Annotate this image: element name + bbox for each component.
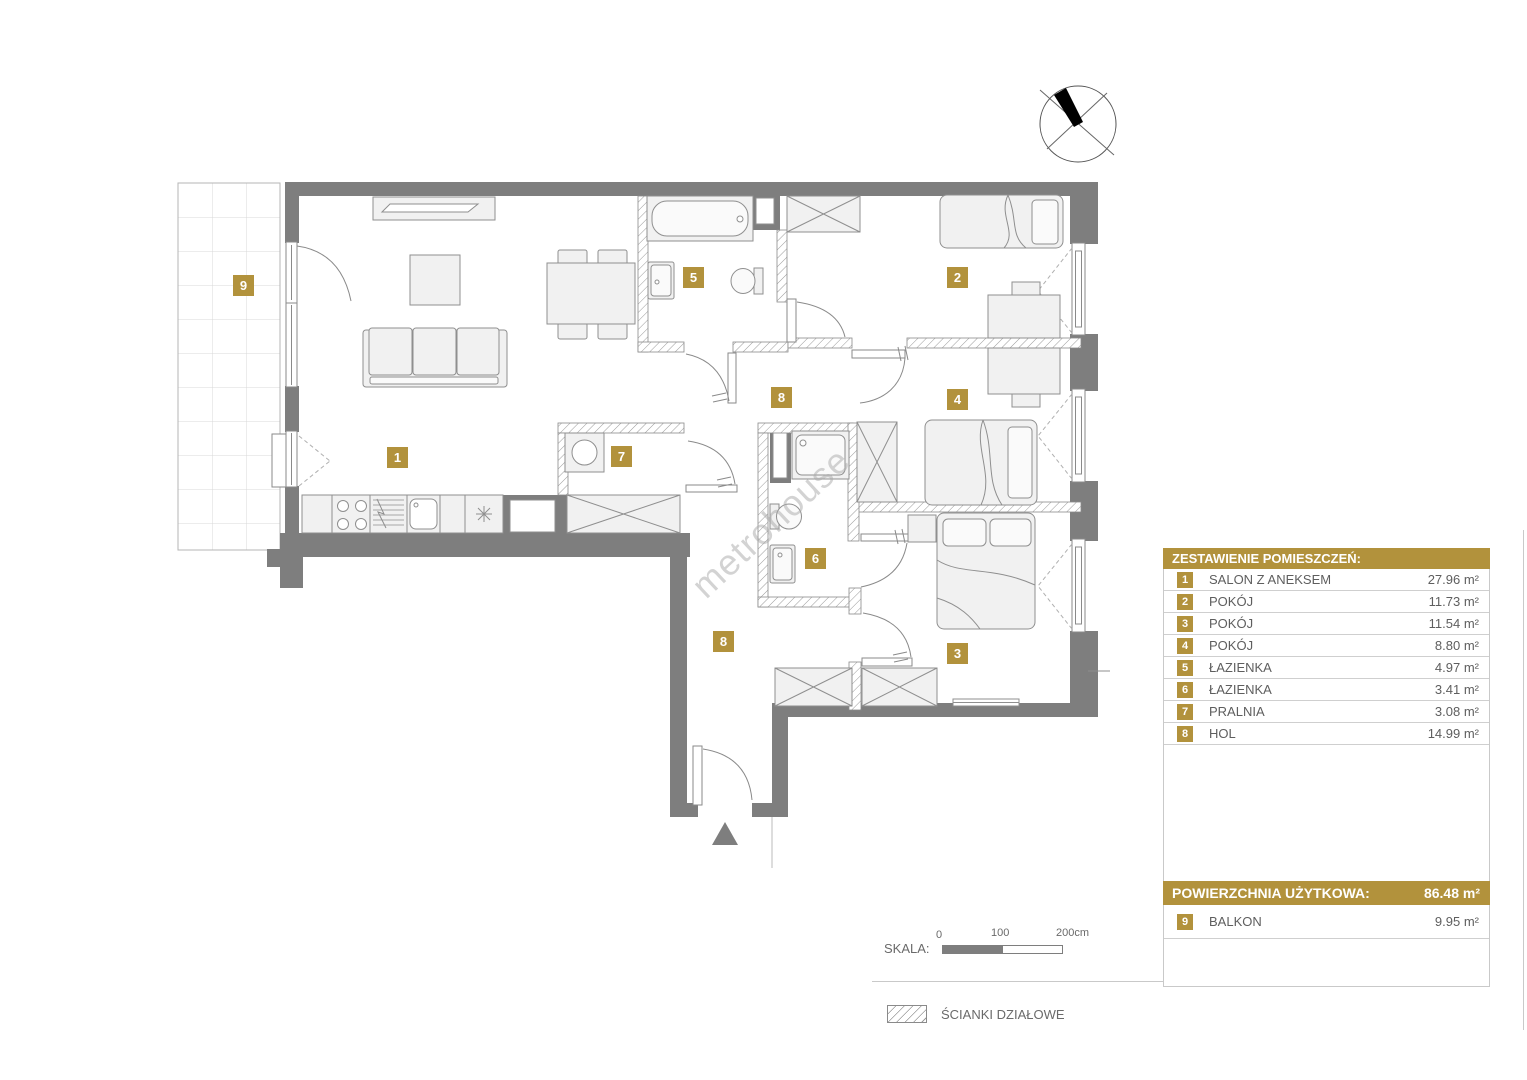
- room-badge-6: 6: [805, 548, 826, 569]
- washing-machine: [565, 433, 604, 472]
- row-badge: 9: [1177, 914, 1193, 930]
- room-badge-1: 1: [387, 447, 408, 468]
- sheet-border-line: [1523, 530, 1524, 1030]
- row-badge: 7: [1177, 704, 1193, 720]
- legend-row-2: 2POKÓJ11.73 m²: [1164, 591, 1489, 613]
- row-name: POKÓJ: [1209, 594, 1253, 609]
- desk-room2: [988, 282, 1060, 338]
- row-name: POKÓJ: [1209, 616, 1253, 631]
- nightstand-room3: [908, 515, 936, 542]
- room3-door: [862, 613, 912, 666]
- radiator-room3: [953, 699, 1019, 706]
- room-badge-3: 3: [947, 643, 968, 664]
- scale-bar-dark: [942, 945, 1002, 954]
- separator-line: [872, 981, 1163, 982]
- toilet-bath5: [731, 268, 763, 294]
- scale-bar-light: [1002, 945, 1063, 954]
- room-badge-8: 8: [713, 631, 734, 652]
- compass-icon: [1040, 86, 1116, 162]
- row-badge: 1: [1177, 572, 1193, 588]
- row-area: 4.97 m²: [1435, 660, 1479, 675]
- row-name: HOL: [1209, 726, 1236, 741]
- tv-cabinet: [373, 197, 495, 220]
- legend-header: ZESTAWIENIE POMIESZCZEŃ:: [1163, 548, 1490, 569]
- room-badge-5: 5: [683, 267, 704, 288]
- row-area: 3.08 m²: [1435, 704, 1479, 719]
- balcony-door: [286, 242, 351, 303]
- bed-room3-double: [937, 513, 1035, 629]
- bed-room4: [925, 420, 1037, 505]
- legend-row-8: 8HOL14.99 m²: [1164, 723, 1489, 745]
- row-name: ŁAZIENKA: [1209, 660, 1272, 675]
- row-area: 27.96 m²: [1428, 572, 1479, 587]
- row-area: 9.95 m²: [1435, 914, 1479, 929]
- balcony: [178, 183, 280, 550]
- legend-row-6: 6ŁAZIENKA3.41 m²: [1164, 679, 1489, 701]
- row-area: 8.80 m²: [1435, 638, 1479, 653]
- row-name: SALON Z ANEKSEM: [1209, 572, 1331, 587]
- entrance-door: [693, 746, 752, 805]
- row-area: 11.73 m²: [1429, 594, 1479, 609]
- total-value: 86.48 m²: [1424, 885, 1480, 901]
- legend-row-5: 5ŁAZIENKA4.97 m²: [1164, 657, 1489, 679]
- row-badge: 3: [1177, 616, 1193, 632]
- row-name: PRALNIA: [1209, 704, 1265, 719]
- room-badge-4: 4: [947, 389, 968, 410]
- room-badge-9: 9: [233, 275, 254, 296]
- legend-rows: 1SALON Z ANEKSEM27.96 m²2POKÓJ11.73 m²3P…: [1164, 569, 1489, 745]
- legend-row-1: 1SALON Z ANEKSEM27.96 m²: [1164, 569, 1489, 591]
- partition-legend-label: ŚCIANKI DZIAŁOWE: [941, 1007, 1065, 1022]
- legend-balcony-row: 9 BALKON 9.95 m²: [1164, 905, 1489, 939]
- scale-tick-0: 0: [936, 929, 942, 941]
- room-badge-2: 2: [947, 267, 968, 288]
- row-name: BALKON: [1209, 914, 1262, 929]
- row-area: 11.54 m²: [1429, 616, 1479, 631]
- sink-bath6: [770, 545, 795, 583]
- legend-row-7: 7PRALNIA3.08 m²: [1164, 701, 1489, 723]
- sink-bath5: [648, 262, 674, 299]
- room-badge-7: 7: [611, 446, 632, 467]
- entrance-marker: [712, 822, 738, 845]
- row-name: ŁAZIENKA: [1209, 682, 1272, 697]
- scale-tick-200: 200cm: [1056, 927, 1089, 939]
- hall-corridor-door: [787, 299, 845, 342]
- legend-row-4: 4POKÓJ8.80 m²: [1164, 635, 1489, 657]
- room4-door: [852, 346, 908, 403]
- row-area: 3.41 m²: [1435, 682, 1479, 697]
- row-badge: 8: [1177, 726, 1193, 742]
- bathtub: [647, 196, 753, 241]
- wall-niches: [510, 198, 787, 532]
- window-left: [272, 303, 330, 487]
- row-area: 14.99 m²: [1428, 726, 1479, 741]
- desk-room4: [988, 348, 1060, 407]
- scale-tick-100: 100: [991, 927, 1009, 939]
- coffee-table: [410, 255, 460, 305]
- scale-label: SKALA:: [884, 941, 930, 956]
- dining-set: [547, 250, 635, 339]
- row-badge: 5: [1177, 660, 1193, 676]
- sofa: [363, 328, 507, 387]
- laundry-door: [686, 441, 737, 492]
- room-legend-table: ZESTAWIENIE POMIESZCZEŃ: 1SALON Z ANEKSE…: [1163, 548, 1490, 987]
- bed-room2: [940, 195, 1063, 248]
- row-name: POKÓJ: [1209, 638, 1253, 653]
- total-label: POWIERZCHNIA UŻYTKOWA:: [1163, 885, 1370, 901]
- row-badge: 2: [1177, 594, 1193, 610]
- row-badge: 6: [1177, 682, 1193, 698]
- floorplan-sheet: metrohouse 1234567889 ZESTAWIENIE POMIES…: [0, 0, 1527, 1080]
- room-badge-8: 8: [771, 387, 792, 408]
- bathroom6-door: [861, 529, 909, 587]
- kitchen-counter: [302, 495, 503, 533]
- legend-total-bar: POWIERZCHNIA UŻYTKOWA: 86.48 m²: [1163, 881, 1490, 905]
- bathroom5-door: [686, 353, 736, 403]
- row-badge: 4: [1177, 638, 1193, 654]
- partition-hatch-swatch: [887, 1005, 927, 1023]
- legend-row-3: 3POKÓJ11.54 m²: [1164, 613, 1489, 635]
